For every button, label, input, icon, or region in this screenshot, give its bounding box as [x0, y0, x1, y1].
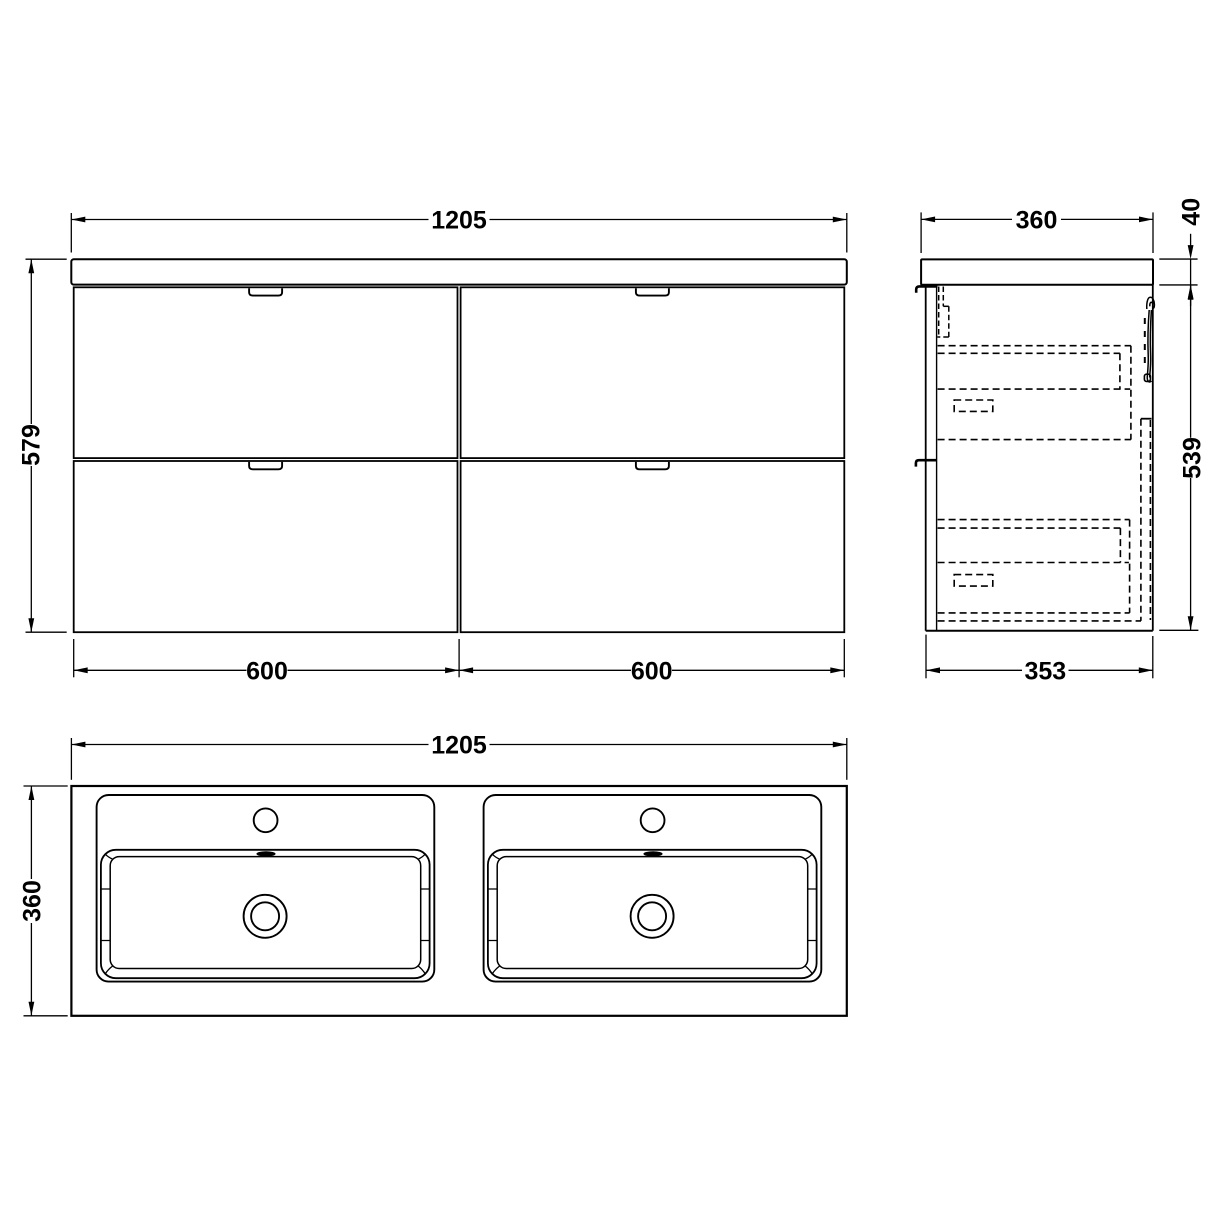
svg-text:600: 600 — [631, 657, 673, 685]
svg-text:600: 600 — [246, 657, 288, 685]
svg-text:353: 353 — [1024, 657, 1066, 685]
svg-text:579: 579 — [18, 424, 46, 466]
svg-text:1205: 1205 — [431, 207, 487, 235]
svg-text:539: 539 — [1179, 437, 1207, 479]
svg-text:1205: 1205 — [431, 732, 487, 760]
svg-text:40: 40 — [1178, 198, 1206, 226]
svg-text:360: 360 — [1016, 206, 1058, 234]
svg-text:360: 360 — [18, 880, 46, 922]
